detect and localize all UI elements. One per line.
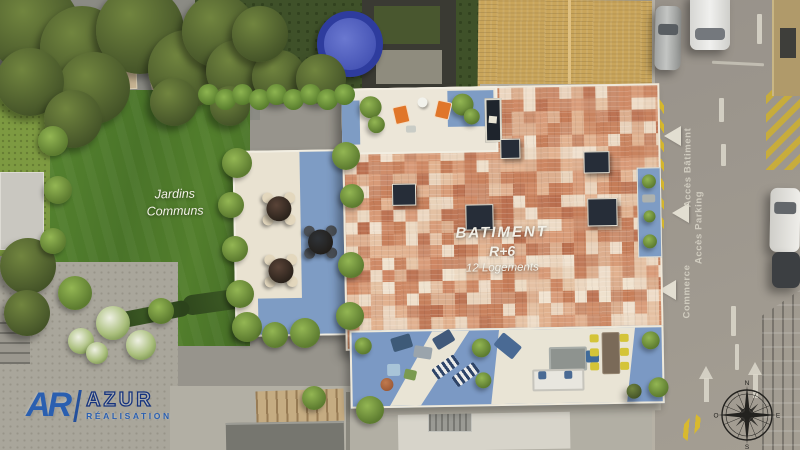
shrub bbox=[232, 312, 262, 342]
car-window bbox=[695, 28, 725, 40]
yellow-roof-ridge bbox=[568, 0, 571, 88]
communal-gardens-label-line1: Jardins bbox=[125, 185, 225, 204]
lane-dash bbox=[735, 344, 739, 370]
flowering-shrub bbox=[86, 342, 108, 364]
lane-dash bbox=[731, 306, 736, 336]
cushion bbox=[538, 371, 546, 379]
shrub bbox=[262, 322, 288, 348]
skylight bbox=[500, 139, 520, 159]
terrace-mat bbox=[406, 125, 416, 132]
shrub bbox=[38, 126, 68, 156]
terrace-plant bbox=[359, 96, 381, 118]
logo-tagline: RÉALISATION bbox=[86, 412, 172, 421]
car bbox=[654, 6, 681, 70]
lane-dash bbox=[719, 98, 724, 122]
dining-chair bbox=[590, 334, 599, 342]
cushion bbox=[564, 371, 572, 379]
lounger bbox=[413, 345, 433, 360]
balcony-plant bbox=[642, 174, 656, 188]
skylight bbox=[583, 151, 609, 173]
shrub bbox=[58, 276, 92, 310]
tree-canopy bbox=[4, 290, 50, 336]
flowering-shrub bbox=[96, 306, 130, 340]
communal-gardens-label: Jardins Communs bbox=[125, 185, 226, 220]
commerce-label: Commerce bbox=[682, 257, 693, 327]
terrace-blue-floor bbox=[341, 100, 360, 144]
car bbox=[769, 188, 800, 253]
building-level-label: R+6 bbox=[420, 242, 584, 261]
car-window bbox=[658, 24, 678, 35]
lane-dash bbox=[721, 144, 726, 166]
main-building: BATIMENT R+6 12 Logements bbox=[335, 75, 667, 415]
south-terrace bbox=[349, 325, 664, 408]
shrub bbox=[222, 148, 252, 178]
dining-chair bbox=[620, 348, 629, 356]
lounge-chair bbox=[392, 104, 411, 125]
balcony bbox=[780, 28, 796, 58]
car bbox=[690, 0, 730, 50]
logo-divider bbox=[73, 390, 82, 422]
access-parking-label: Accès Parking bbox=[694, 183, 705, 273]
street-side-building bbox=[772, 0, 800, 96]
pergola bbox=[255, 388, 344, 423]
rooftop-terrace bbox=[341, 86, 498, 155]
terracotta-pot bbox=[380, 378, 393, 391]
tree-canopy bbox=[150, 78, 198, 126]
shrub bbox=[148, 298, 174, 324]
compass-west-label: O bbox=[713, 413, 718, 420]
shrub bbox=[340, 184, 364, 208]
shrub bbox=[356, 396, 384, 424]
compass-east-label: E bbox=[776, 413, 781, 420]
shrub bbox=[222, 236, 248, 262]
communal-gardens-label-line2: Communs bbox=[125, 202, 225, 221]
terrace-plant bbox=[368, 116, 385, 133]
access-arrow-icon bbox=[664, 126, 681, 146]
shrub bbox=[226, 280, 254, 308]
lounger bbox=[390, 333, 413, 352]
balcony-plant bbox=[643, 210, 655, 222]
flowering-shrub bbox=[126, 330, 156, 360]
shrub bbox=[338, 252, 364, 278]
logo-company-name: AZUR bbox=[86, 390, 172, 410]
roof-chimney bbox=[484, 98, 502, 142]
lane-arrow-icon bbox=[704, 378, 709, 402]
compass-north-label: N bbox=[745, 380, 750, 387]
shrub bbox=[336, 302, 364, 330]
shrub bbox=[44, 176, 72, 204]
compass-south-label: S bbox=[745, 444, 750, 450]
car-window bbox=[774, 202, 796, 214]
developer-logo: AR AZUR RÉALISATION bbox=[26, 386, 172, 425]
shrub bbox=[302, 386, 326, 410]
shrub bbox=[40, 228, 66, 254]
tree-canopy bbox=[232, 6, 288, 62]
shrub bbox=[332, 142, 360, 170]
yellow-hatch-zone bbox=[766, 86, 800, 170]
terrace-plant bbox=[472, 338, 491, 357]
garden-grass-cell bbox=[374, 6, 440, 44]
terrace-plant bbox=[355, 337, 372, 354]
lower-gray-roof bbox=[226, 421, 345, 450]
terrace-plant bbox=[648, 377, 668, 397]
compass-rose-icon: N E S O bbox=[712, 380, 782, 450]
shrub bbox=[218, 192, 244, 218]
east-balcony bbox=[637, 167, 663, 257]
car bbox=[772, 252, 800, 288]
logo-monogram: AR bbox=[26, 386, 69, 425]
lane-dash bbox=[757, 14, 762, 44]
balcony-bench bbox=[642, 194, 655, 202]
hedge-shrub bbox=[334, 84, 355, 105]
skylight bbox=[587, 198, 617, 227]
shrub bbox=[290, 318, 320, 348]
round-table bbox=[417, 97, 427, 107]
access-building-label: Accès Bâtiment bbox=[683, 123, 694, 213]
dining-table bbox=[602, 332, 621, 374]
terrace-plant bbox=[642, 331, 660, 349]
chimney-vent bbox=[489, 116, 498, 124]
aerial-site-plan: Accès Bâtiment Accès Parking Commerce bbox=[0, 0, 800, 450]
outdoor-table bbox=[549, 347, 587, 372]
terrace-plant bbox=[626, 384, 641, 399]
dining-chair bbox=[590, 348, 599, 356]
balcony-plant bbox=[643, 234, 657, 248]
low-table bbox=[387, 364, 400, 376]
dining-chair bbox=[590, 362, 599, 370]
dining-chair bbox=[620, 362, 629, 370]
skylight bbox=[392, 183, 416, 205]
building-title-block: BATIMENT R+6 12 Logements bbox=[420, 223, 585, 276]
dining-chair bbox=[620, 334, 629, 342]
building-name-label: BATIMENT bbox=[420, 223, 584, 243]
terrace-plant bbox=[475, 372, 491, 388]
